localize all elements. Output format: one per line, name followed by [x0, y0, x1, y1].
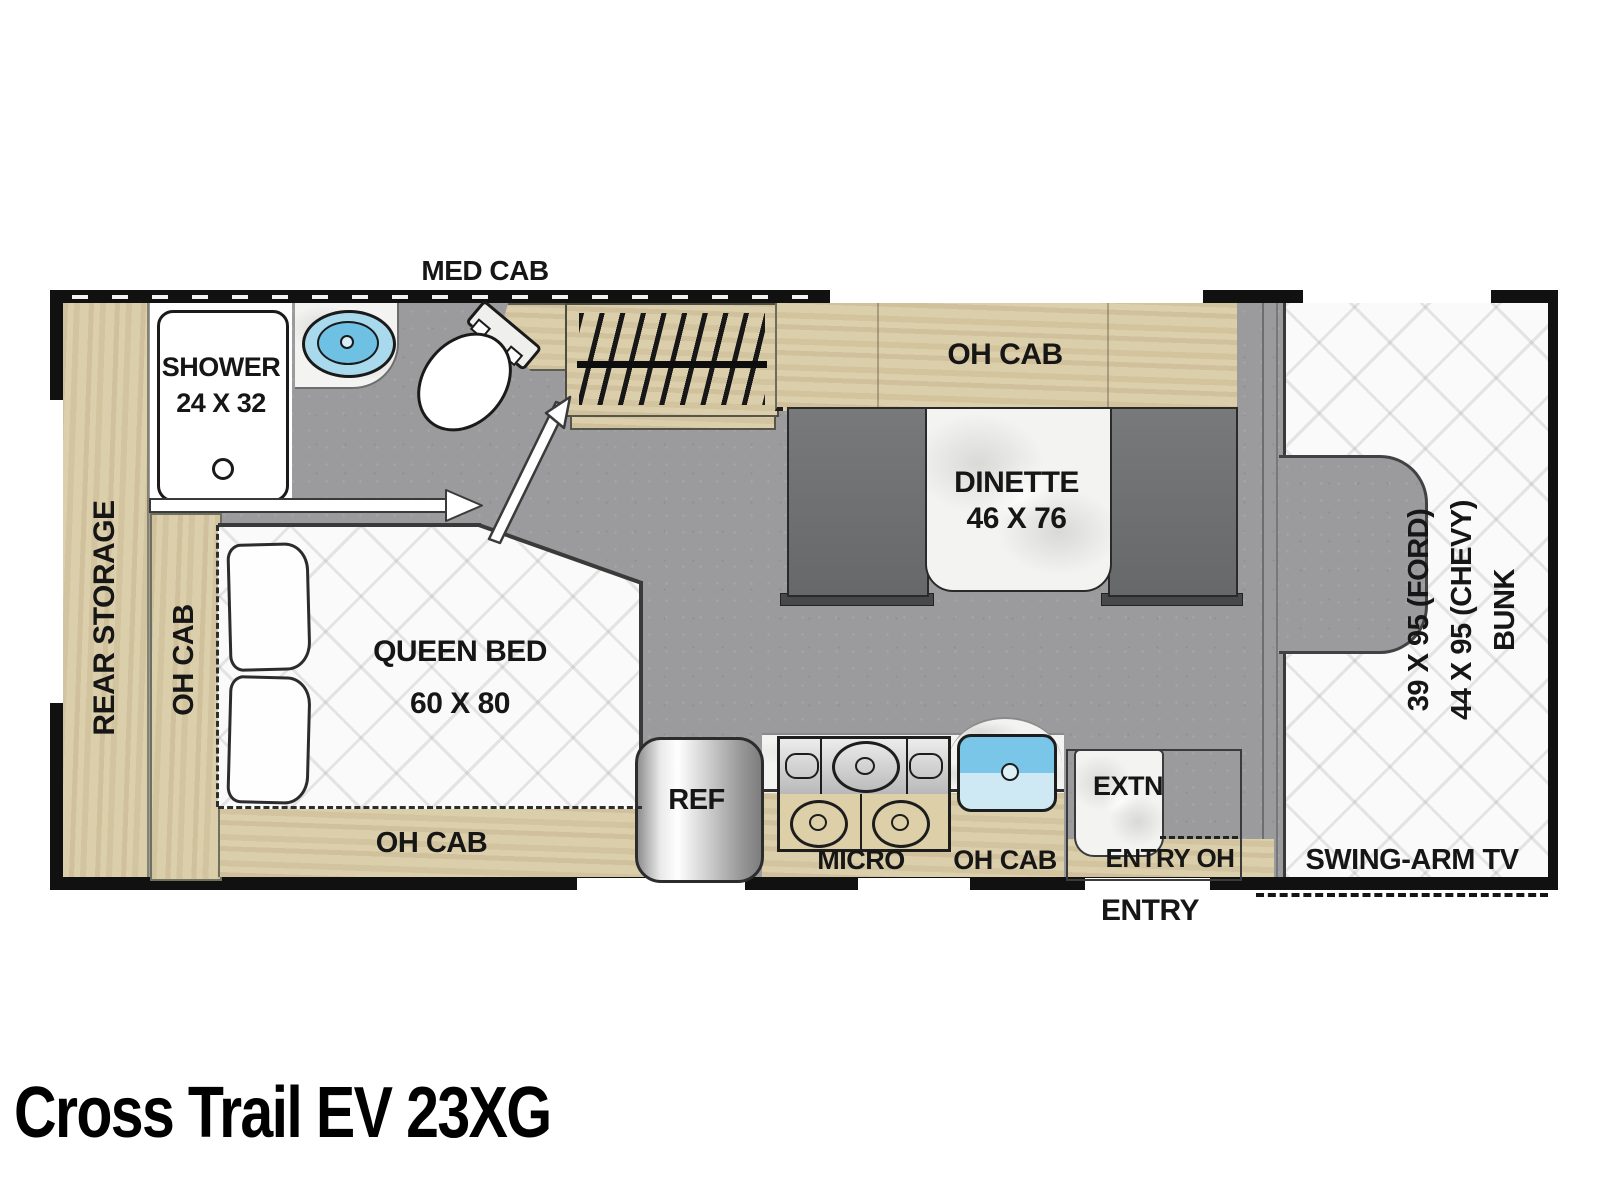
cooktop-grid-line-mid [860, 794, 862, 849]
floorplan-page: REAR STORAGE SHOWER 24 X 32 OH CAB DINET… [0, 0, 1600, 1200]
wardrobe-base [570, 415, 776, 430]
shower-drain-icon [212, 458, 234, 480]
extn-label: EXTN [1068, 770, 1188, 802]
wall-dash-marks [72, 295, 820, 299]
cooktop-lower [780, 794, 948, 849]
entry-oh-label: ENTRY OH [1066, 843, 1274, 873]
window-opening-top-1 [830, 289, 1203, 304]
cooktop-side-left [785, 753, 819, 779]
pillow-top [226, 542, 311, 672]
shower-dims-label: 24 X 32 [150, 388, 292, 418]
cooktop-icon [777, 736, 951, 852]
cooktop-grid-line-left [820, 739, 822, 794]
dinette-label: DINETTE [925, 466, 1108, 500]
queen-bed-edge-top [218, 523, 481, 527]
cooktop-upper [780, 739, 948, 796]
cooktop-burner-right-center [891, 814, 909, 831]
floorplan-title: Cross Trail EV 23XG [14, 1072, 637, 1152]
bathroom-sink-drain [340, 335, 354, 349]
bunk-dims-ford: 39 X 95 (FORD) [1398, 509, 1441, 712]
micro-label: MICRO [777, 845, 945, 875]
dinette-bench-right [1108, 407, 1238, 597]
rear-storage-label: REAR STORAGE [85, 418, 125, 818]
cooktop-burner-large-center [855, 757, 875, 775]
window-opening-left [49, 400, 63, 703]
entry-dashed-line [1160, 836, 1238, 839]
dinette-bench-left [787, 407, 929, 597]
kitchen-sink-drain [1001, 763, 1019, 781]
shower-label: SHOWER [150, 352, 292, 382]
cooktop-side-right [909, 753, 943, 779]
wardrobe [565, 303, 779, 417]
oh-cab-top-label: OH CAB [775, 338, 1235, 372]
swing-arm-tv-label: SWING-ARM TV [1283, 845, 1541, 875]
dinette-dims-label: 46 X 76 [925, 502, 1108, 536]
oh-cab-bottom-label: OH CAB [218, 826, 645, 860]
queen-bed-edge-left-dashed [216, 525, 219, 807]
wall-bottom [50, 877, 1558, 890]
oh-cab-kitchen-label: OH CAB [935, 845, 1075, 875]
queen-bed-edge-bottom-dashed [218, 806, 642, 809]
queen-bed-dims-label: 60 X 80 [300, 688, 620, 720]
window-opening-top-2 [1303, 289, 1491, 304]
cooktop-burner-left-center [809, 814, 827, 831]
cooktop-grid-line-right [906, 739, 908, 794]
med-cab-label: MED CAB [405, 256, 565, 286]
entry-label: ENTRY [1080, 894, 1220, 928]
bunk-label: 39 X 95 (FORD) 44 X 95 (CHEVY) BUNK [1396, 440, 1528, 780]
window-opening-bottom-2 [858, 878, 970, 892]
cab-bulkhead-line-1 [1262, 303, 1264, 877]
wardrobe-rod-icon [577, 361, 767, 368]
oh-cab-left-label: OH CAB [165, 520, 203, 800]
wardrobe-hangers-icon [579, 313, 765, 405]
cab-dashed-line [1256, 893, 1548, 897]
cab-bulkhead-line-2 [1276, 303, 1278, 877]
pillow-bottom [226, 675, 311, 805]
queen-bed-label: QUEEN BED [300, 636, 620, 668]
extn-counter [1074, 749, 1164, 857]
ref-label: REF [635, 783, 758, 817]
bunk-dims-chevy: 44 X 95 (CHEVY) [1441, 500, 1484, 720]
bunk-name: BUNK [1484, 569, 1527, 651]
